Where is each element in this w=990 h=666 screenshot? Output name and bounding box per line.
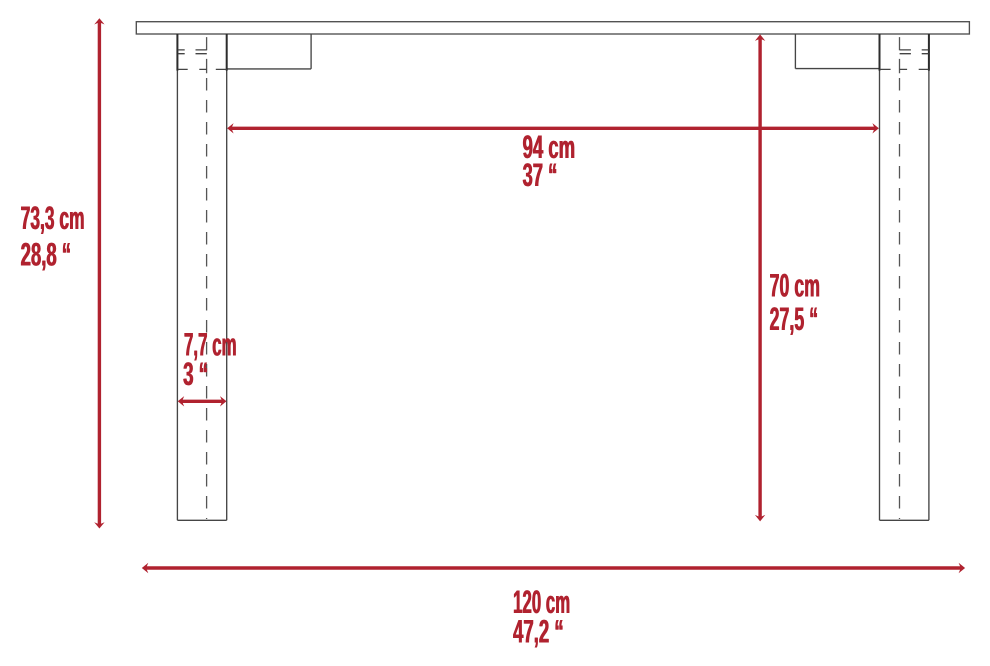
svg-text:47,2 “: 47,2 “ [513,613,564,650]
svg-text:73,3 cm: 73,3 cm [21,202,85,237]
svg-text:27,5 “: 27,5 “ [770,303,819,338]
svg-text:37 “: 37 “ [523,156,558,193]
svg-text:3 “: 3 “ [184,356,209,393]
svg-text:28,8 “: 28,8 “ [21,236,71,273]
svg-text:70 cm: 70 cm [770,269,820,304]
